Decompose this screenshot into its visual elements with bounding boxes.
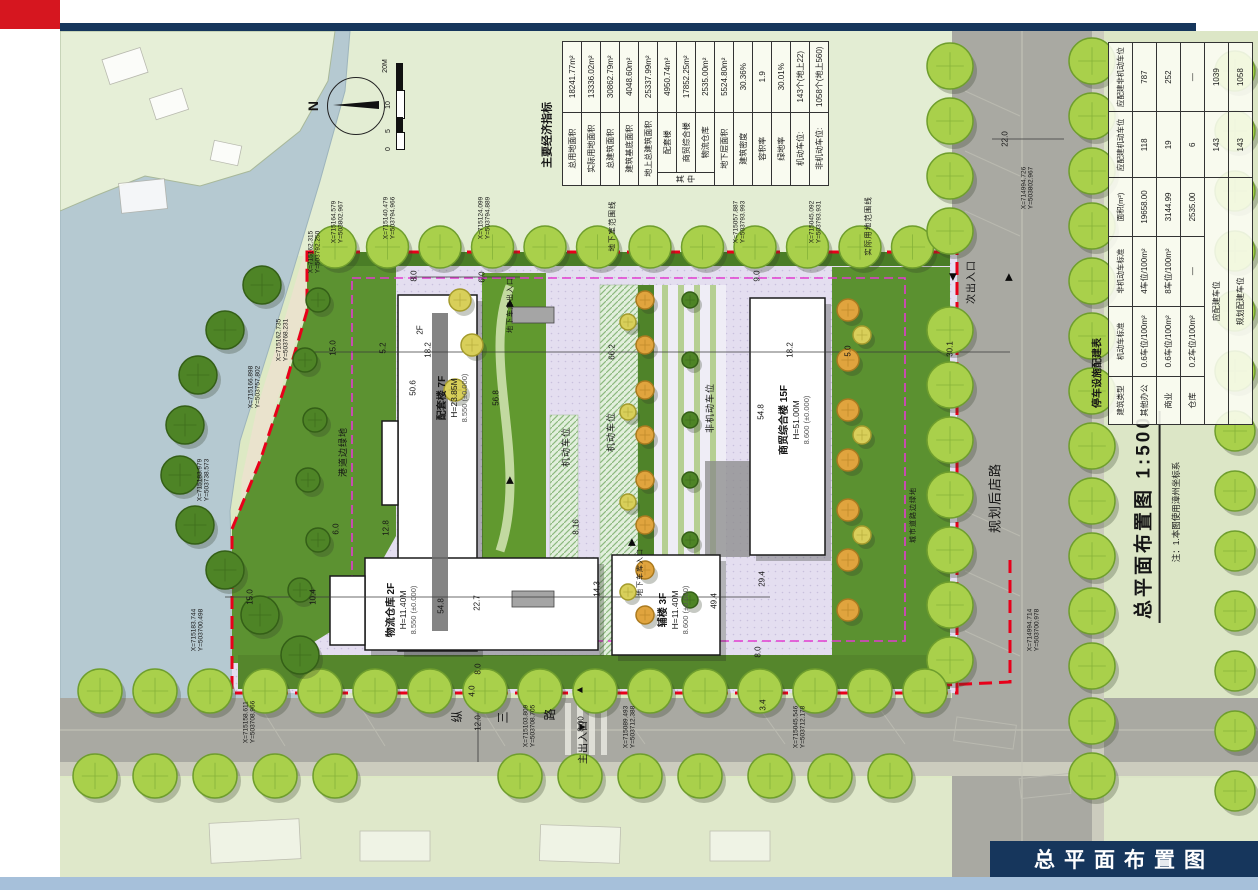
cell: 0.2车位/100m² <box>1181 306 1205 376</box>
econ-label: 地上总建筑面积 <box>639 112 658 185</box>
cell: 3144.99 <box>1157 178 1181 236</box>
econ-value: 30.36% <box>734 42 753 113</box>
econ-value: 4048.60m² <box>620 42 639 113</box>
parking-header-row: 建筑类型 机动车标准 非机动车标准 面积(m²) 应配建机动车位 应配建非机动车… <box>1109 43 1133 425</box>
econ-label: 物流仓库 <box>696 112 715 172</box>
econ-row: 商贸综合楼17852.25m² <box>677 42 696 186</box>
parking-row: 商业0.6车位/100m²8车位/100m²3144.9919252 <box>1157 43 1181 425</box>
cell: 19 <box>1157 112 1181 178</box>
cell: — <box>1181 43 1205 112</box>
econ-label: 总建筑面积 <box>601 112 620 185</box>
parking-table-panel: 建筑类型 机动车标准 非机动车标准 面积(m²) 应配建机动车位 应配建非机动车… <box>1108 42 1253 425</box>
econ-row: 地下层面积5524.80m² <box>715 42 734 186</box>
red-accent-block <box>0 0 60 29</box>
cell: 4车位/100m² <box>1133 236 1157 306</box>
parking-row: 其他办公0.6车位/100m²4车位/100m²19658.00118787 <box>1133 43 1157 425</box>
cell: 252 <box>1157 43 1181 112</box>
bottom-title-bar: 总平面布置图 <box>990 841 1258 877</box>
parking-total-row: 规划配建车位1431058 <box>1229 43 1253 425</box>
econ-label: 绿地率 <box>772 112 791 185</box>
parking-header: 建筑类型 <box>1109 376 1133 424</box>
econ-group-label: 其中 <box>658 172 715 185</box>
parking-header: 非机动车标准 <box>1109 236 1133 306</box>
scale-bar <box>396 132 405 150</box>
parking-total-row: 应配建车位1431039 <box>1205 43 1229 425</box>
cell: 143 <box>1229 112 1253 178</box>
plan-title: 总平面布置图 1:500 <box>1134 411 1161 623</box>
cell: 787 <box>1133 43 1157 112</box>
cell: 0.6车位/100m² <box>1133 306 1157 376</box>
econ-value: 4950.74m² <box>658 42 677 113</box>
econ-label: 建筑基底面积 <box>620 112 639 185</box>
econ-label: 容积率 <box>753 112 772 185</box>
econ-label: 商贸综合楼 <box>677 112 696 172</box>
econ-value: 5524.80m² <box>715 42 734 113</box>
plan-note: 注：1.本图使用漳州坐标系 <box>1172 462 1182 563</box>
econ-value: 18241.77m² <box>563 42 582 113</box>
econ-label: 非机动车位: <box>810 112 829 185</box>
plan-title-text: 总平面布置图 <box>1134 487 1155 619</box>
parking-header: 应配建机动车位 <box>1109 112 1133 178</box>
econ-value: 1058个(地上560) <box>810 42 829 113</box>
econ-row: 实际用地面积13336.02m² <box>582 42 601 186</box>
parking-header: 面积(m²) <box>1109 178 1133 236</box>
econ-row: 其中配套楼4950.74m² <box>658 42 677 186</box>
econ-label: 配套楼 <box>658 112 677 172</box>
econ-value: 143个(地上22) <box>791 42 810 113</box>
cell: 8车位/100m² <box>1157 236 1181 306</box>
econ-label: 机动车位: <box>791 112 810 185</box>
cell: 143 <box>1205 112 1229 178</box>
econ-row: 建筑基底面积4048.60m² <box>620 42 639 186</box>
slide: N 主要经济指标 总用地面积18241.77m² 实际用地面积13336.02m… <box>0 0 1258 890</box>
econ-row: 绿地率30.01% <box>772 42 791 186</box>
econ-row: 建筑密度30.36% <box>734 42 753 186</box>
econ-value: 30862.79m² <box>601 42 620 113</box>
cell: 仓库 <box>1181 376 1205 424</box>
econ-row: 非机动车位:1058个(地上560) <box>810 42 829 186</box>
cell: 应配建车位 <box>1205 178 1229 425</box>
econ-row: 总用地面积18241.77m² <box>563 42 582 186</box>
scale-bar <box>396 63 403 90</box>
econ-value: 13336.02m² <box>582 42 601 113</box>
cell: 19658.00 <box>1133 178 1157 236</box>
parking-table-title: 停车设施配建表 <box>1092 338 1104 408</box>
econ-row: 地上总建筑面积25337.99m² <box>639 42 658 186</box>
econ-row: 容积率1.9 <box>753 42 772 186</box>
parking-header: 应配建非机动车位 <box>1109 43 1133 112</box>
cell: 规划配建车位 <box>1229 178 1253 425</box>
econ-label: 总用地面积 <box>563 112 582 185</box>
econ-value: 1.9 <box>753 42 772 113</box>
cell: 商业 <box>1157 376 1181 424</box>
parking-header: 机动车标准 <box>1109 306 1133 376</box>
cell: 118 <box>1133 112 1157 178</box>
scale-bar <box>396 90 405 119</box>
north-label: N <box>305 101 321 111</box>
cell: 1039 <box>1205 43 1229 112</box>
econ-row: 物流仓库2535.00m² <box>696 42 715 186</box>
econ-label: 地下层面积 <box>715 112 734 185</box>
cell: 6 <box>1181 112 1205 178</box>
econ-table-title: 主要经济指标 <box>542 102 555 168</box>
econ-row: 总建筑面积30862.79m² <box>601 42 620 186</box>
econ-label: 建筑密度 <box>734 112 753 185</box>
econ-table: 总用地面积18241.77m² 实际用地面积13336.02m² 总建筑面积30… <box>562 41 829 186</box>
econ-table-panel: 总用地面积18241.77m² 实际用地面积13336.02m² 总建筑面积30… <box>562 41 827 186</box>
econ-value: 25337.99m² <box>639 42 658 113</box>
econ-value: 17852.25m² <box>677 42 696 113</box>
bottom-strip <box>0 877 1258 890</box>
cell: — <box>1181 236 1205 306</box>
econ-row: 机动车位:143个(地上22) <box>791 42 810 186</box>
cell: 0.6车位/100m² <box>1157 306 1181 376</box>
scale-bar <box>396 117 403 132</box>
parking-row: 仓库0.2车位/100m²—2535.006— <box>1181 43 1205 425</box>
cell: 2535.00 <box>1181 178 1205 236</box>
cell: 其他办公 <box>1133 376 1157 424</box>
econ-label: 实际用地面积 <box>582 112 601 185</box>
footer-title: 总平面布置图 <box>1034 844 1214 874</box>
econ-value: 30.01% <box>772 42 791 113</box>
parking-table: 建筑类型 机动车标准 非机动车标准 面积(m²) 应配建机动车位 应配建非机动车… <box>1108 42 1253 425</box>
building-annex-label: 2F <box>415 325 424 334</box>
north-arrow-icon <box>333 101 379 109</box>
econ-value: 2535.00m² <box>696 42 715 113</box>
cell: 1058 <box>1229 43 1253 112</box>
